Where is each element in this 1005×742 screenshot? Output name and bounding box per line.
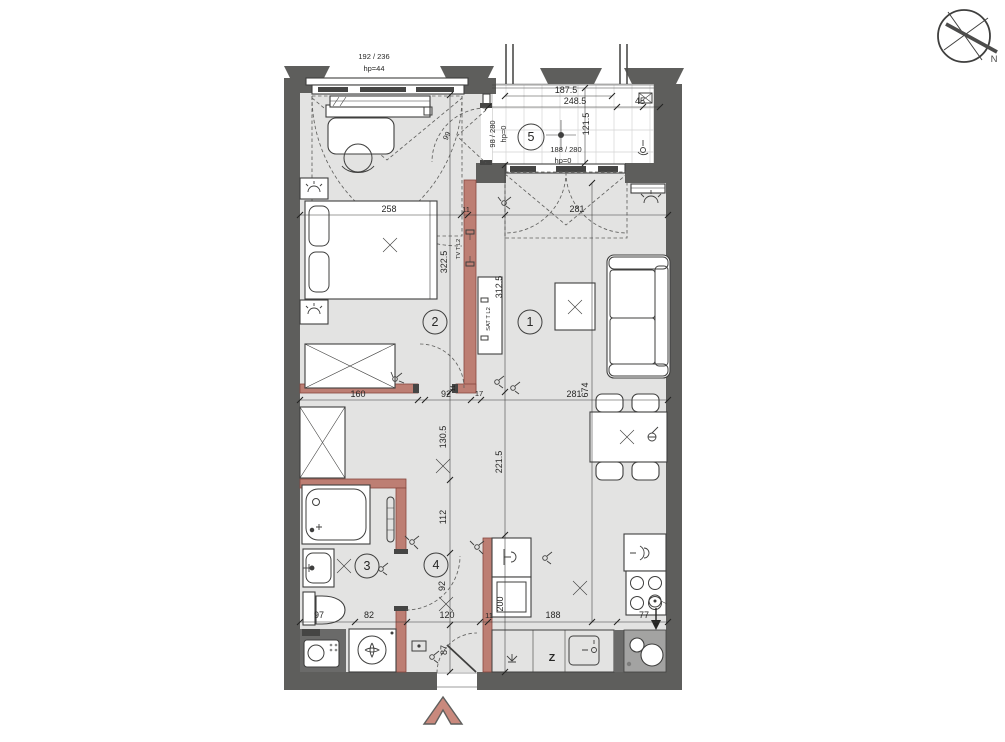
compass-north-label: N	[991, 54, 998, 65]
room-number-bathroom: 3	[364, 559, 371, 573]
floor-plan-drawing: 1 2 3 4 5 192 / 236 hp=44 187.5 248.5 45…	[0, 0, 1005, 742]
dim-wall-bottom: 11	[485, 611, 493, 620]
wall-bath-right-up	[396, 488, 406, 553]
dim-stove-width: 77	[639, 610, 649, 620]
kitchen-duct	[614, 630, 624, 672]
dim-kitchen-width: 188	[545, 610, 560, 620]
door-frame-bath-b	[394, 606, 408, 611]
dim-bedroom-depth: 322.5	[439, 251, 449, 274]
wall-stub-living	[456, 384, 476, 393]
kitchen-counter-right	[624, 534, 666, 571]
awning-4	[624, 68, 684, 84]
awning-3	[540, 68, 602, 84]
tv-outlet-label: TV T L2	[456, 239, 462, 259]
washing-machine	[349, 629, 396, 672]
dim-entry-seg: 87	[439, 645, 449, 655]
living-window-size: 188 / 280	[550, 145, 581, 154]
dim-hall-seg1: 130.5	[438, 426, 448, 449]
dim-living-lower: 221.5	[494, 451, 504, 474]
dim-wall-top: 11	[462, 205, 470, 214]
sofa	[607, 255, 670, 378]
door-frame-bed-a	[413, 384, 419, 393]
living-window-sill: hp=0	[555, 156, 572, 165]
dining-chair-1	[596, 394, 623, 412]
dim-living-top: 281	[569, 204, 584, 214]
floor-plan-page: 1 2 3 4 5 192 / 236 hp=44 187.5 248.5 45…	[0, 0, 1005, 742]
wall-bottom-a	[284, 672, 437, 690]
dim-bed-wall: 258	[381, 204, 396, 214]
utility-sink	[304, 640, 339, 667]
dim-living-depth: 312.5	[494, 276, 504, 299]
wall-bath-right-low	[396, 610, 406, 672]
dim-wall-stub: 11	[450, 384, 457, 391]
wall-living-top-a	[476, 163, 506, 183]
dim-shaft-width: 97	[314, 610, 324, 620]
balcony-door-size: 98 / 280	[488, 120, 497, 147]
room-number-balcony: 5	[528, 130, 535, 144]
fridge-cabinet	[492, 538, 531, 577]
bedroom-window-sill: hp=44	[363, 64, 384, 73]
wall-living-top-b	[625, 163, 668, 183]
dim-bath-width: 82	[364, 610, 374, 620]
living-window-pads	[510, 166, 618, 172]
stove	[626, 571, 666, 615]
wall-left	[284, 78, 300, 690]
freezer-label: Z	[549, 652, 556, 664]
dining-chair-3	[596, 462, 623, 480]
dim-balcony-inner: 187.5	[555, 85, 578, 95]
wall-kitchen	[483, 538, 492, 672]
room-number-living: 1	[527, 315, 534, 329]
room-number-hall: 4	[433, 558, 440, 572]
radiator-bedroom	[330, 96, 430, 107]
bedroom-window-sill	[306, 78, 468, 85]
wall-balcony-pier	[654, 84, 668, 163]
door-frame-bath-a	[394, 549, 408, 554]
shaft-pad	[302, 629, 320, 636]
bedroom-window-size: 192 / 236	[358, 52, 389, 61]
dim-balcony-outer: 248.5	[564, 96, 587, 106]
entrance-threshold	[437, 673, 477, 687]
bathtub	[302, 485, 370, 544]
radiator-living	[631, 184, 665, 193]
dim-living-width: 281	[566, 389, 581, 399]
dim-entry-width: 120	[439, 610, 454, 620]
corner-sink-dot	[627, 662, 631, 666]
wall-bottom-b	[477, 672, 682, 690]
dim-wardrobe-wall: 160	[350, 389, 365, 399]
dim-kitchen-depth: 200	[495, 596, 505, 611]
entrance-arrow	[424, 697, 462, 724]
balcony-door-sill: hp=0	[499, 126, 508, 143]
corner-sink-large	[641, 644, 663, 666]
dim-balcony-depth: 121.5	[581, 113, 591, 136]
room-number-bedroom: 2	[432, 315, 439, 329]
bedroom-window-pads	[318, 87, 454, 92]
desk	[328, 118, 394, 154]
dim-wall-mid: 17	[475, 389, 483, 398]
dim-hall-seg3: 92	[437, 581, 447, 591]
dining-chair-4	[632, 462, 659, 480]
coffee-table	[555, 283, 595, 330]
dining-chair-2	[632, 394, 659, 412]
sat-outlet-label: SAT T L2	[486, 307, 492, 331]
compass: N	[938, 10, 998, 65]
dim-balcony-side: 45	[635, 96, 645, 106]
dim-hall-seg2: 112	[438, 510, 448, 524]
wall-right	[666, 84, 682, 690]
bed	[305, 201, 437, 299]
